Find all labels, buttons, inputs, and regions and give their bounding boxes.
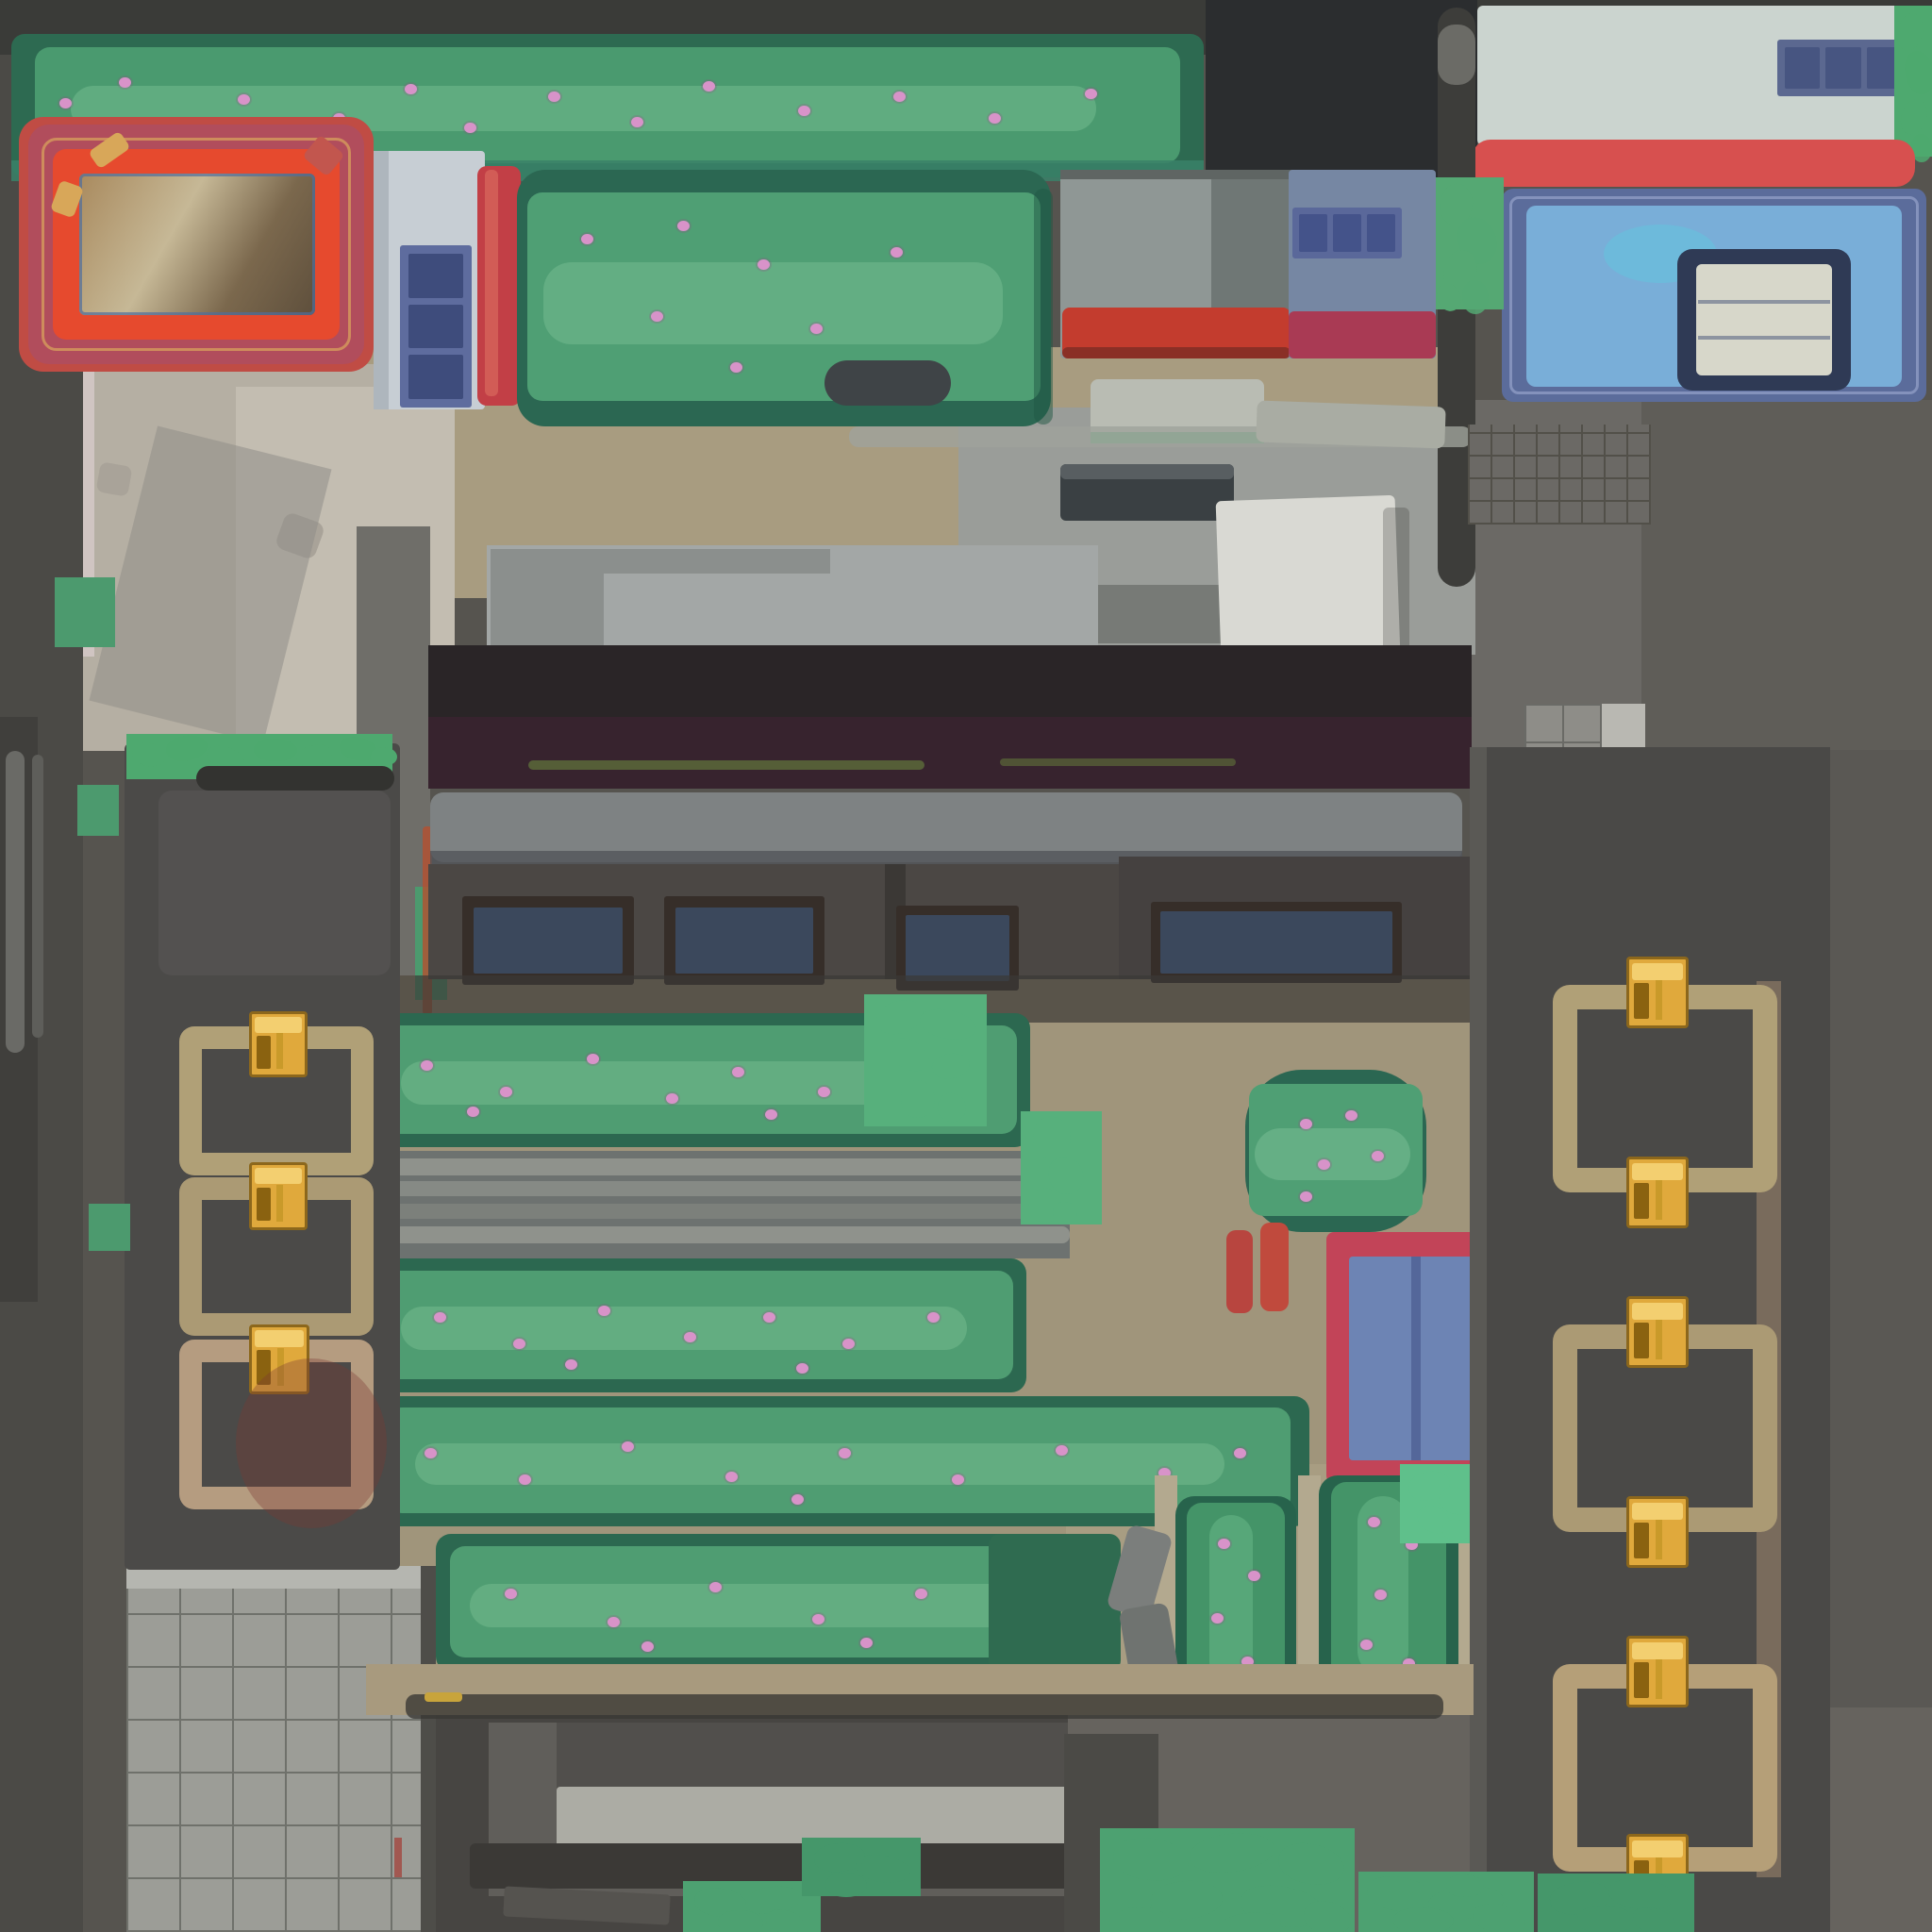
leaf-blob [1577, 1906, 1634, 1932]
flower-dot [434, 1312, 446, 1323]
right-road-top [1641, 400, 1932, 755]
leaf-spray [864, 994, 987, 1126]
roof-maroon-band [428, 717, 1472, 789]
leaf-blob [1113, 1907, 1170, 1932]
leaf-blob [1629, 1905, 1676, 1932]
leaf-blob [1893, 10, 1926, 53]
game-map-texture [0, 0, 1932, 1932]
leaf-blob [1275, 1839, 1347, 1890]
flower-dot [421, 1060, 433, 1071]
facade-window [1151, 902, 1402, 983]
flower-dot [1300, 1119, 1312, 1129]
bottom-hedge-shadow [406, 1694, 1443, 1719]
left-pipe [6, 751, 25, 1053]
gold-buckle [249, 1011, 308, 1077]
flower-dot [119, 77, 131, 88]
gold-buckle [1626, 1157, 1689, 1228]
red-stripe-topright [1472, 140, 1915, 187]
flower-dot [732, 1067, 744, 1077]
pipe-foliage [1434, 177, 1504, 309]
white-door-window-pane [408, 254, 463, 298]
leaf-blob [254, 739, 297, 761]
flower-dot [513, 1339, 525, 1349]
flower-dot [1218, 1539, 1230, 1549]
facade-window [664, 896, 824, 985]
flower-dot [891, 247, 903, 258]
facade-window-pane [906, 915, 1009, 981]
leaf-blob [1393, 1907, 1454, 1932]
flower-dot [548, 92, 560, 102]
gray-building-topline [1060, 170, 1292, 179]
flower-dot [796, 1363, 808, 1374]
bluegray-window [1292, 208, 1402, 258]
flower-dot [1345, 1110, 1357, 1121]
white-building-window [1777, 40, 1909, 96]
gold-buckle-bk-top [255, 1017, 302, 1033]
grid-floor-divider [421, 1566, 436, 1932]
gold-buckle-bk-notch [1634, 1662, 1649, 1698]
flower-dot [238, 94, 250, 105]
orange-red-stripe-shadow [1062, 347, 1291, 358]
hedge-row-2-light [401, 1307, 967, 1349]
hedge-row-4-light [470, 1584, 1058, 1628]
gold-buckle-bk-top [1632, 1163, 1683, 1180]
flower-dot [763, 1312, 775, 1323]
leaf-blob [1446, 1874, 1484, 1897]
facade-window [462, 896, 634, 985]
leaf-blob [930, 1051, 972, 1082]
crate-left-darkbar [196, 766, 394, 791]
hedge-block-big-light [543, 262, 1003, 344]
flower-dot [1300, 1191, 1312, 1202]
leaf-blob [1053, 1202, 1077, 1224]
roof-green-glint [528, 760, 924, 770]
flower-dot [608, 1617, 620, 1627]
gold-buckle [1626, 1296, 1689, 1368]
leaf-blob [825, 1873, 867, 1897]
blue-crate-hatch-slats [1696, 264, 1832, 375]
gold-buckle-bk-notch [1634, 1323, 1649, 1358]
bench-capsule [824, 360, 951, 406]
flower-dot [989, 113, 1001, 124]
flower-dot [651, 311, 663, 322]
leaf-blob [104, 1226, 124, 1244]
facade-window-pane [474, 908, 623, 974]
flower-dot [565, 1359, 577, 1370]
flower-dot [842, 1339, 855, 1349]
gold-buckle-bk-top [1632, 1642, 1683, 1659]
hedge-row-2 [368, 1258, 1026, 1392]
leaf-blob [1442, 1520, 1471, 1541]
crate-zone-right-edge [1470, 747, 1487, 1932]
flower-dot [581, 234, 593, 244]
flower-dot [927, 1312, 940, 1323]
grid-red-mark [394, 1838, 402, 1877]
white-door-window-pane [408, 305, 463, 349]
leaf-blob [884, 1032, 934, 1077]
mulch-leaves [1100, 1828, 1355, 1932]
mulch-leaves [1538, 1874, 1694, 1932]
gold-buckle-bk-top [1632, 963, 1683, 980]
flower-dot [1318, 1159, 1330, 1170]
flower-dot [59, 98, 72, 108]
leaf-blob [1896, 96, 1931, 139]
leaf-blob [164, 733, 209, 764]
mulch-leaves [1358, 1872, 1534, 1932]
gold-buckle [249, 1162, 308, 1230]
gold-buckle-bk-mid [276, 1033, 283, 1069]
flower-dot [860, 1638, 873, 1648]
leaf-blob [917, 1006, 977, 1043]
topright-dark-zone [1206, 0, 1477, 181]
roof-pipe-cap [1438, 25, 1475, 85]
flower-dot [598, 1306, 610, 1316]
crimson-stripe [1289, 311, 1436, 358]
red-pillar-highlight [485, 170, 498, 396]
gold-buckle-bk-mid [1656, 1659, 1663, 1698]
white-door-window [400, 245, 472, 408]
leaf-blob [1462, 280, 1489, 314]
walkway-slab-2 [1256, 401, 1445, 449]
gold-buckle-bk-mid [1656, 1180, 1663, 1219]
plank-strip [375, 1204, 1070, 1219]
crosshatch-grate [1468, 425, 1651, 525]
left-pipe [32, 755, 43, 1038]
gold-buckle-bk-top [1632, 1303, 1683, 1320]
plank-strip [368, 1181, 1070, 1196]
leaf-blob [764, 1907, 806, 1932]
flower-dot [791, 1494, 804, 1505]
gold-buckle-bk-mid [276, 1185, 283, 1222]
red-handle [1226, 1230, 1253, 1313]
leaf-blob [873, 993, 928, 1040]
gold-buckle-bk-notch [257, 1036, 271, 1069]
leaf-blob [1111, 1836, 1191, 1884]
flower-dot [1085, 89, 1097, 99]
leaf-blob [718, 1910, 763, 1932]
roof-green-glint [1000, 758, 1236, 766]
leaf-blob [1187, 1828, 1276, 1877]
gold-buckle-bk-mid [1656, 1520, 1663, 1558]
white-door-window-pane [408, 355, 463, 399]
bush-round-light [1255, 1128, 1410, 1180]
white-building-window-pane [1825, 47, 1860, 89]
flat-dark-crate-top [1060, 464, 1234, 479]
gold-buckle-bk-notch [1634, 1183, 1649, 1219]
white-building-foliage [1894, 6, 1932, 157]
flower-dot [641, 1641, 654, 1652]
flower-dot [758, 259, 770, 270]
gold-buckle-bk-top [255, 1330, 304, 1347]
hatch-slat-line [1698, 300, 1830, 304]
grid-floor [126, 1566, 432, 1932]
bluegray-window-pane [1333, 214, 1361, 252]
facade-window-pane [675, 908, 813, 974]
gold-buckle [1626, 1636, 1689, 1707]
red-window-divider [1411, 1257, 1421, 1460]
moss-patch [55, 577, 115, 647]
plank-strip [375, 1158, 1070, 1175]
mulch-leaves [683, 1881, 821, 1932]
bluegray-window-pane [1299, 214, 1327, 252]
gold-buckle-bk-top [255, 1168, 302, 1184]
crate-left-section [158, 791, 391, 975]
leaf-blob [1902, 49, 1932, 97]
moss-patch [77, 785, 119, 836]
gold-buckle [1626, 1496, 1689, 1568]
gold-buckle-bk-mid [1656, 1320, 1663, 1358]
flower-dot [587, 1054, 599, 1064]
leaf-blob [1029, 1114, 1074, 1161]
red-pillar [477, 166, 521, 406]
leaf-blob [92, 1208, 111, 1225]
leaf-blob [1471, 1901, 1527, 1932]
hedge-block-big [517, 170, 1051, 426]
leaf-blob [81, 790, 102, 808]
flower-dot [952, 1474, 964, 1485]
leaf-blob [64, 623, 87, 641]
flower-dot [519, 1474, 531, 1485]
crate-left-red-tint [236, 1358, 387, 1528]
flower-dot [1368, 1517, 1380, 1527]
hatch-slat-line [1698, 336, 1830, 340]
red-crate-blue-piping [79, 174, 315, 315]
gold-sliver [425, 1692, 462, 1702]
flower-dot [1056, 1445, 1068, 1456]
gold-buckle-bk-notch [257, 1188, 271, 1222]
flower-dot [1248, 1571, 1260, 1581]
facade-window-pane [1160, 911, 1392, 974]
leaf-blob [901, 1080, 935, 1118]
hedge-row-3-light [415, 1443, 1224, 1485]
hex-bolt [95, 461, 132, 496]
moss-patch [89, 1204, 130, 1251]
white-building-window-pane [1785, 47, 1820, 89]
leaf-blob [91, 808, 112, 828]
bottom-platform-dark [557, 1723, 1068, 1790]
plank-strip [368, 1226, 1070, 1243]
bush-round [1245, 1070, 1426, 1232]
hedge-row-4-dark-end [989, 1534, 1121, 1672]
gold-buckle-bk-top [1632, 1503, 1683, 1520]
white-door-edge [374, 151, 389, 409]
parapet-edge-dark [491, 549, 830, 574]
leaf-spray [1021, 1111, 1102, 1224]
gold-buckle-bk-notch [1634, 983, 1649, 1019]
hedge-block-shadow [1034, 189, 1053, 425]
flower-dot [505, 1589, 517, 1599]
gray-building-dark-part [1211, 177, 1292, 313]
leaf-blob [935, 1091, 970, 1125]
gold-buckle-bk-mid [1656, 980, 1663, 1019]
red-handle [1260, 1223, 1289, 1311]
gold-buckle-bk-top [1632, 1840, 1683, 1857]
leaf-blob [130, 741, 168, 769]
flower-dot [812, 1614, 824, 1624]
gold-buckle-bk-notch [1634, 1523, 1649, 1558]
bluegray-window-pane [1367, 214, 1395, 252]
gold-buckle [1626, 957, 1689, 1028]
mulch-leaves [802, 1838, 921, 1896]
